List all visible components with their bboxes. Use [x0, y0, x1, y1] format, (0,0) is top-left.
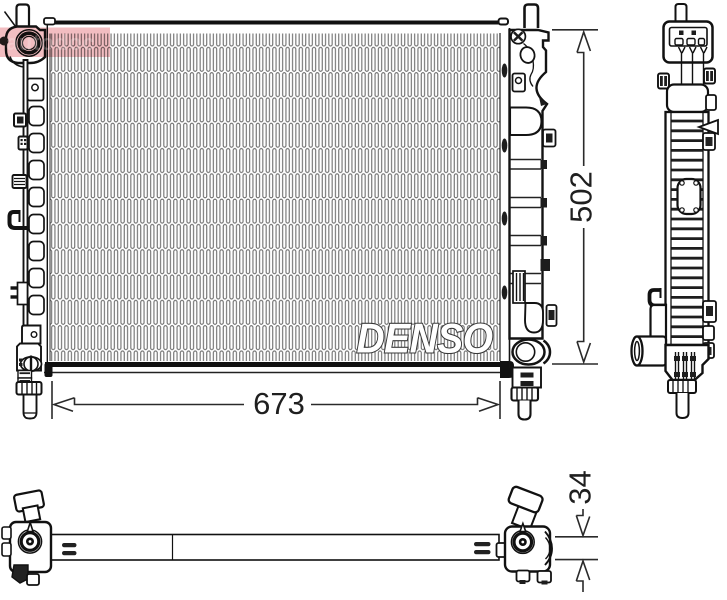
- svg-text:34: 34: [563, 470, 598, 504]
- svg-text:autodoc: autodoc: [6, 30, 95, 55]
- svg-text:502: 502: [564, 171, 599, 223]
- svg-text:673: 673: [253, 386, 305, 421]
- svg-text:DENSO: DENSO: [357, 315, 493, 362]
